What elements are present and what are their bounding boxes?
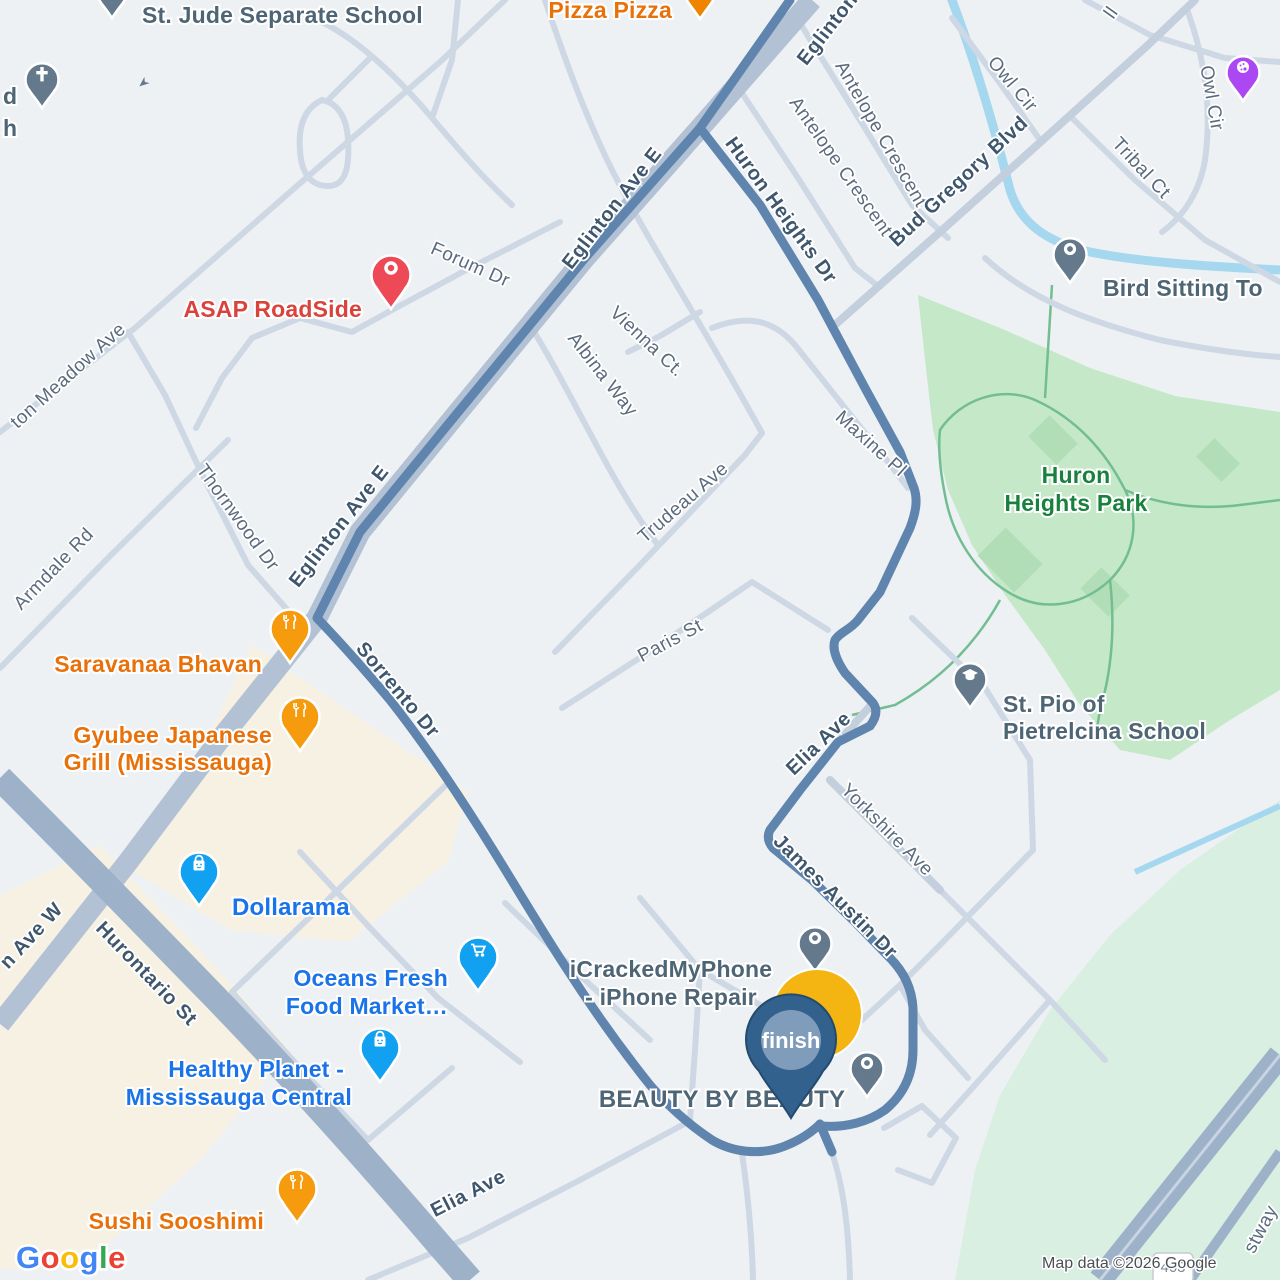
google-logo-letter: G xyxy=(16,1240,41,1275)
park-label-line1: Huron xyxy=(1042,462,1111,488)
poi-label-icracked-line2[interactable]: - iPhone Repair xyxy=(585,984,757,1010)
poi-label-healthy-line1[interactable]: Healthy Planet - xyxy=(168,1056,344,1082)
google-logo[interactable]: Google xyxy=(16,1240,126,1275)
map-attribution: Map data ©2026 Google xyxy=(1042,1255,1217,1272)
poi-label-icracked-line1[interactable]: iCrackedMyPhone xyxy=(570,956,772,982)
map-svg: Eglinton Ave E Eglinton Ave E Eglinton A… xyxy=(0,0,1280,1280)
poi-label-asap[interactable]: ASAP RoadSide xyxy=(183,296,362,322)
poi-label-st-pio-line1[interactable]: St. Pio of xyxy=(1003,691,1105,717)
poi-label-healthy-line2[interactable]: Mississauga Central xyxy=(126,1084,352,1110)
google-logo-letter: e xyxy=(108,1240,126,1275)
poi-label-oceans-line1[interactable]: Oceans Fresh xyxy=(293,965,448,991)
poi-label-saravanaa[interactable]: Saravanaa Bhavan xyxy=(54,651,262,677)
poi-label-bird[interactable]: Bird Sitting To xyxy=(1103,275,1263,301)
finish-pin-label: finish xyxy=(762,1028,821,1053)
poi-label-gyubee-line1[interactable]: Gyubee Japanese xyxy=(73,722,272,748)
poi-label-pizza[interactable]: Pizza Pizza xyxy=(548,0,672,23)
park-label-line2: Heights Park xyxy=(1004,490,1147,516)
poi-label-dollarama[interactable]: Dollarama xyxy=(232,894,350,921)
google-logo-letter: o xyxy=(41,1240,60,1275)
google-logo-letter: l xyxy=(99,1240,108,1275)
poi-label-sushi[interactable]: Sushi Sooshimi xyxy=(89,1208,264,1234)
poi-label-church-frag2: h xyxy=(3,115,17,141)
google-logo-letter: o xyxy=(60,1240,79,1275)
poi-label-gyubee-line2[interactable]: Grill (Mississauga) xyxy=(64,749,272,775)
poi-label-church-frag1: d xyxy=(3,83,17,109)
poi-label-st-pio-line2[interactable]: Pietrelcina School xyxy=(1003,718,1206,744)
palette-icon xyxy=(1237,61,1249,73)
poi-label-st-jude[interactable]: St. Jude Separate School xyxy=(142,2,423,28)
google-maps-canvas[interactable]: Eglinton Ave E Eglinton Ave E Eglinton A… xyxy=(0,0,1280,1280)
google-logo-letter: g xyxy=(80,1240,99,1275)
svg-text:Google: Google xyxy=(16,1240,126,1275)
poi-label-oceans-line2[interactable]: Food Market… xyxy=(286,993,448,1019)
